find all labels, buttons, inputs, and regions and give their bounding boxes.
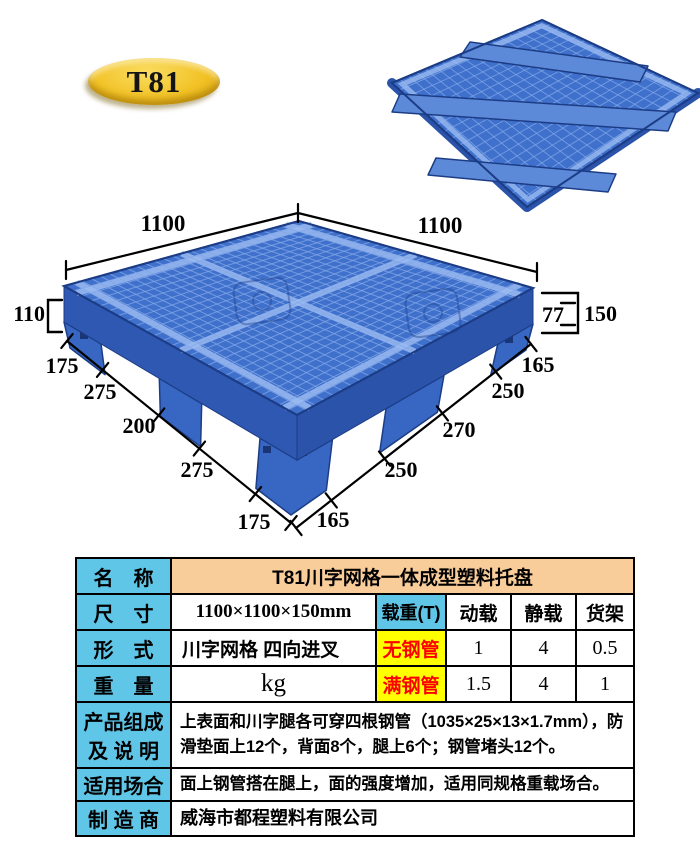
manufacturer-label: 制 造 商 (76, 801, 171, 836)
name-value: T81川字网格一体成型塑料托盘 (171, 558, 634, 594)
dim-left-seg-3: 200 (123, 413, 156, 438)
size-label: 尺 寸 (76, 594, 171, 630)
size-value: 1100×1100×150mm (171, 594, 376, 630)
dim-fork-height-label: 77 (542, 302, 564, 327)
load-col-dynamic: 动载 (446, 594, 511, 630)
type-value: 川字网格 四向进叉 (171, 630, 376, 666)
type-label: 形 式 (76, 630, 171, 666)
dim-top-left-label: 1100 (141, 211, 186, 236)
dim-left-seg-5: 175 (238, 509, 271, 534)
no-pipe-dynamic: 1 (446, 630, 511, 666)
composition-label-line2: 及 说 明 (88, 741, 159, 763)
dim-right-seg-2: 250 (385, 457, 418, 482)
spec-table: 名 称 T81川字网格一体成型塑料托盘 尺 寸 1100×1100×150mm … (75, 557, 635, 837)
table-row-size: 尺 寸 1100×1100×150mm 载重(T) 动载 静载 货架 (76, 594, 634, 630)
dim-top-right-label: 1100 (418, 213, 463, 238)
dim-right-seg-1: 165 (317, 507, 350, 532)
no-pipe-label: 无钢管 (376, 630, 446, 666)
dim-left-seg-1: 175 (46, 353, 79, 378)
no-pipe-static: 4 (511, 630, 576, 666)
deck-height-bracket (48, 300, 62, 332)
dim-right-seg-5: 165 (522, 352, 555, 377)
load-col-static: 静载 (511, 594, 576, 630)
table-row-usage: 适用场合 面上钢管搭在腿上，面的强度增加，适用同规格重载场合。 (76, 768, 634, 801)
pallet-diagram: 1100 1100 110 77 150 175 275 200 275 175… (0, 0, 700, 555)
full-pipe-label: 满钢管 (376, 666, 446, 702)
table-row-type: 形 式 川字网格 四向进叉 无钢管 1 4 0.5 (76, 630, 634, 666)
full-pipe-dynamic: 1.5 (446, 666, 511, 702)
composition-label-line1: 产品组成 (84, 712, 164, 734)
usage-value: 面上钢管搭在腿上，面的强度增加，适用同规格重载场合。 (171, 768, 634, 801)
load-label: 载重(T) (376, 594, 446, 630)
pallet-main-view (64, 221, 533, 515)
dim-total-height-label: 150 (584, 301, 617, 326)
no-pipe-rack: 0.5 (576, 630, 634, 666)
weight-label: 重 量 (76, 666, 171, 702)
load-col-rack: 货架 (576, 594, 634, 630)
table-row-manufacturer: 制 造 商 威海市都程塑料有限公司 (76, 801, 634, 836)
full-pipe-static: 4 (511, 666, 576, 702)
dim-left-seg-2: 275 (84, 379, 117, 404)
product-sheet: T81 1100 1100 110 77 150 175 275 200 275… (0, 0, 700, 867)
table-row-composition: 产品组成 及 说 明 上表面和川字腿各可穿四根钢管（1035×25×13×1.7… (76, 702, 634, 768)
usage-label: 适用场合 (76, 768, 171, 801)
dim-right-seg-4: 250 (492, 378, 525, 403)
composition-value: 上表面和川字腿各可穿四根钢管（1035×25×13×1.7mm），防滑垫面上12… (171, 702, 634, 768)
pallet-photo-3d (392, 20, 698, 207)
full-pipe-rack: 1 (576, 666, 634, 702)
composition-label: 产品组成 及 说 明 (76, 702, 171, 768)
table-row-name: 名 称 T81川字网格一体成型塑料托盘 (76, 558, 634, 594)
dim-left-seg-4: 275 (181, 457, 214, 482)
table-row-weight: 重 量 kg 满钢管 1.5 4 1 (76, 666, 634, 702)
weight-value: kg (171, 666, 376, 702)
dim-deck-height-label: 110 (13, 301, 45, 326)
name-label: 名 称 (76, 558, 171, 594)
manufacturer-value: 威海市都程塑料有限公司 (171, 801, 634, 836)
